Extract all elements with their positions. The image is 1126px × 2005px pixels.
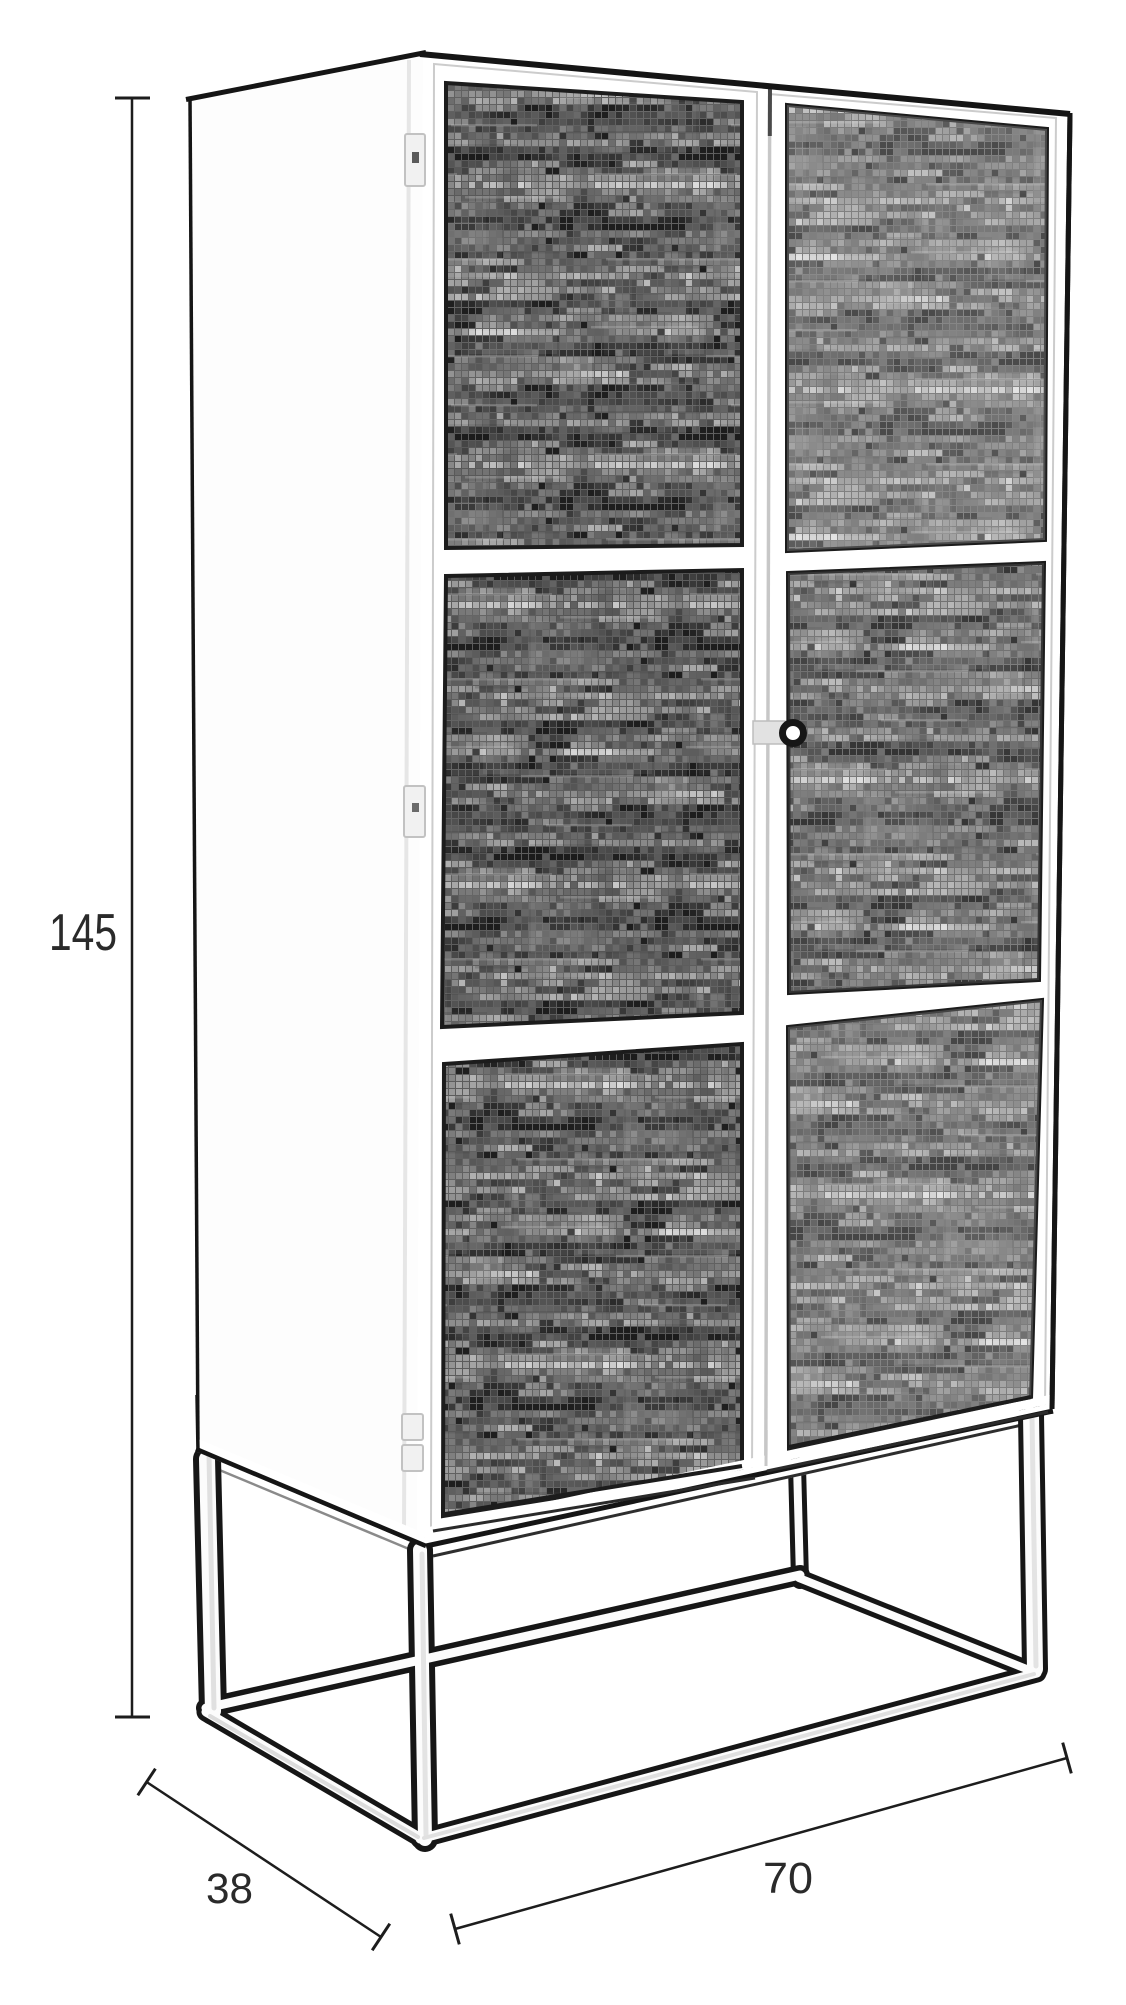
svg-text:38: 38: [206, 1865, 253, 1913]
svg-text:70: 70: [763, 1854, 813, 1903]
svg-text:145: 145: [49, 904, 117, 962]
